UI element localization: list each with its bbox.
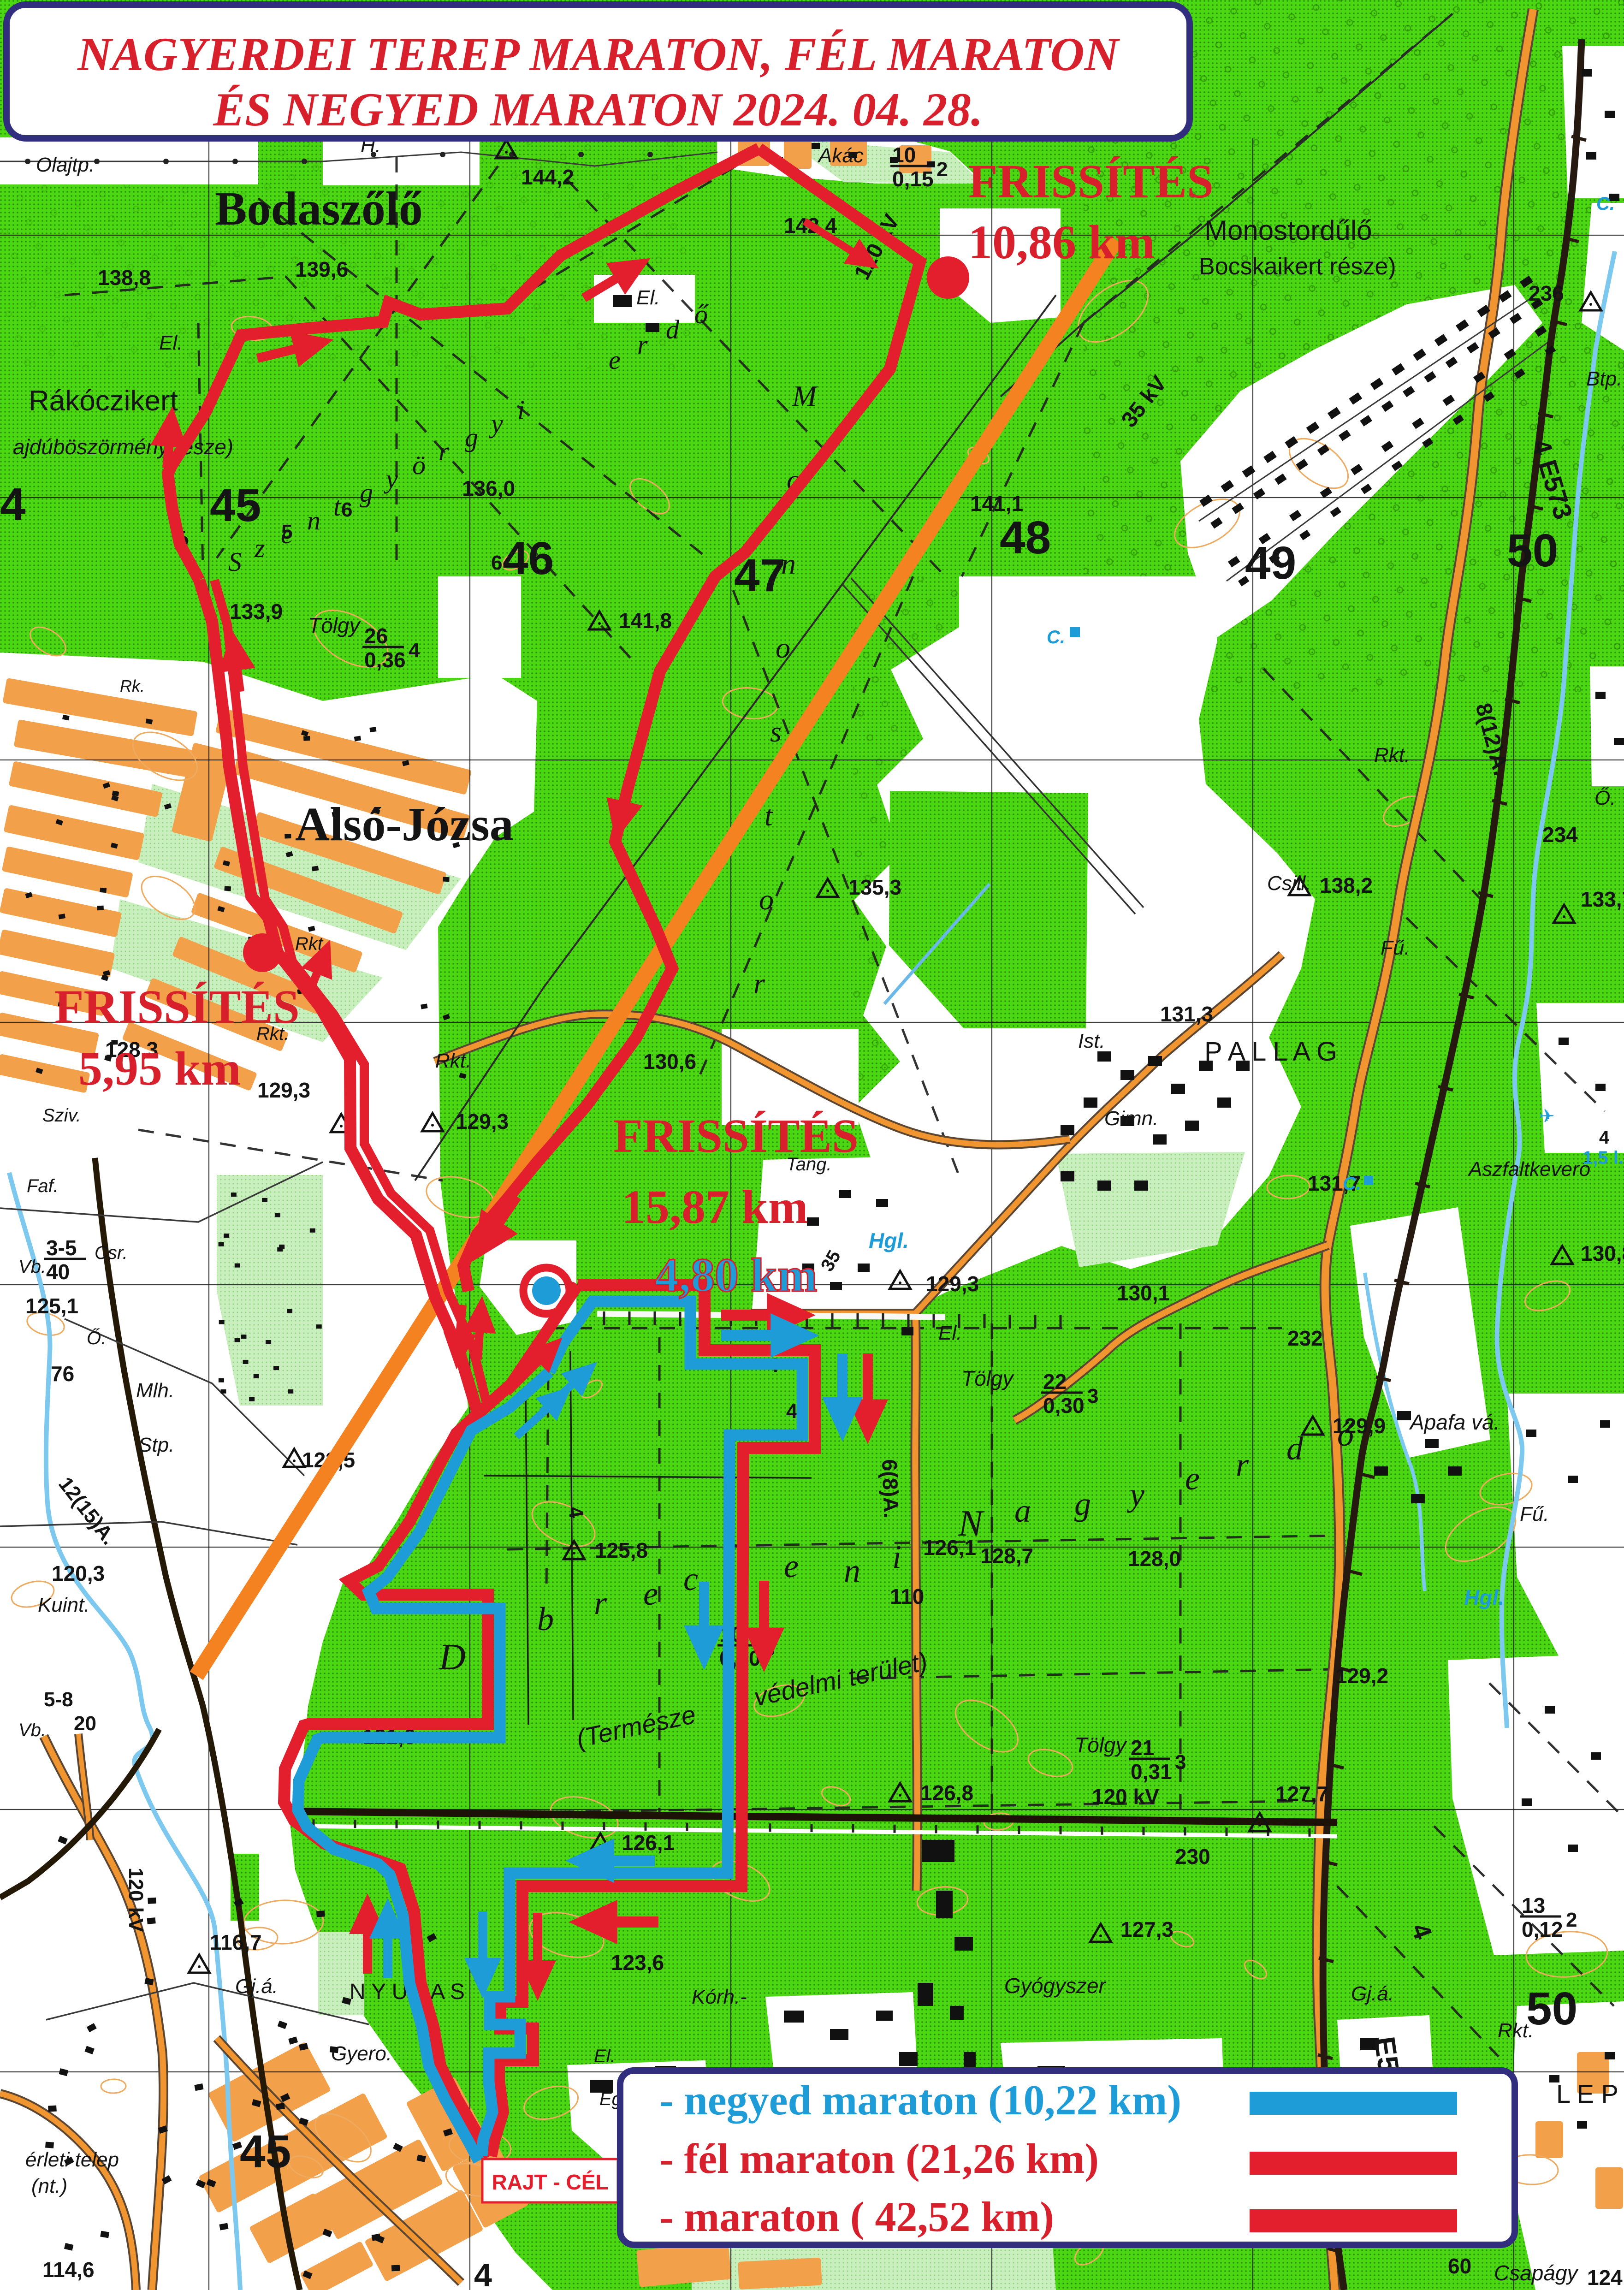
svg-text:Ő.: Ő. bbox=[1594, 787, 1616, 809]
svg-text:C.: C. bbox=[1596, 194, 1615, 214]
svg-text:Tölgy: Tölgy bbox=[1074, 1733, 1127, 1757]
svg-text:Btp.: Btp. bbox=[1586, 368, 1622, 390]
svg-text:g: g bbox=[1074, 1485, 1091, 1522]
svg-text:Hgl.: Hgl. bbox=[1464, 1585, 1504, 1609]
svg-text:125,1: 125,1 bbox=[25, 1294, 78, 1318]
svg-text:Rkt.: Rkt. bbox=[1498, 2019, 1534, 2042]
svg-text:Mlh.: Mlh. bbox=[136, 1379, 174, 1402]
svg-text:c: c bbox=[683, 1560, 698, 1597]
svg-text:133,9: 133,9 bbox=[230, 599, 283, 623]
svg-text:26: 26 bbox=[364, 624, 388, 648]
svg-text:Ist.: Ist. bbox=[1078, 1030, 1105, 1052]
svg-text:e: e bbox=[1185, 1460, 1200, 1497]
svg-text:4: 4 bbox=[474, 2257, 492, 2290]
svg-text:60: 60 bbox=[1448, 2254, 1471, 2278]
svg-text:120 kV: 120 kV bbox=[1092, 1785, 1159, 1809]
svg-text:129,3: 129,3 bbox=[456, 1109, 509, 1133]
svg-text:- negyed maraton (10,22 km): - negyed maraton (10,22 km) bbox=[659, 2076, 1181, 2124]
svg-text:Gyógyszer: Gyógyszer bbox=[1004, 1974, 1107, 1998]
svg-text:Csr.: Csr. bbox=[95, 1243, 128, 1263]
svg-text:126,8: 126,8 bbox=[920, 1781, 973, 1805]
svg-text:50: 50 bbox=[1507, 525, 1558, 576]
svg-text:135,3: 135,3 bbox=[848, 875, 901, 899]
svg-text:138,2: 138,2 bbox=[1320, 873, 1373, 897]
svg-text:2: 2 bbox=[1566, 1909, 1577, 1931]
svg-text:22: 22 bbox=[1043, 1370, 1067, 1394]
svg-text:Apafa vá.: Apafa vá. bbox=[1409, 1410, 1500, 1434]
svg-text:49: 49 bbox=[1245, 537, 1296, 589]
svg-text:125,8: 125,8 bbox=[595, 1538, 648, 1562]
svg-text:Sziv.: Sziv. bbox=[42, 1105, 81, 1126]
svg-text:ő: ő bbox=[1337, 1416, 1355, 1453]
svg-text:50: 50 bbox=[1526, 1983, 1577, 2035]
svg-text:48: 48 bbox=[1000, 512, 1051, 564]
svg-text:b: b bbox=[537, 1601, 554, 1637]
svg-text:ÉS NEGYED MARATON 2024. 04. 28: ÉS NEGYED MARATON 2024. 04. 28. bbox=[213, 83, 983, 136]
svg-text:d: d bbox=[1286, 1430, 1304, 1467]
svg-text:230: 230 bbox=[1175, 1845, 1210, 1869]
svg-text:Csill.: Csill. bbox=[1267, 872, 1311, 895]
svg-text:76: 76 bbox=[51, 1362, 74, 1386]
svg-text:40: 40 bbox=[46, 1260, 70, 1284]
svg-text:D: D bbox=[439, 1637, 466, 1678]
svg-text:C.: C. bbox=[1047, 627, 1065, 647]
svg-text:Rkt.: Rkt. bbox=[435, 1050, 471, 1072]
svg-text:130,8: 130,8 bbox=[1581, 1241, 1624, 1265]
svg-text:21: 21 bbox=[1131, 1736, 1154, 1760]
svg-text:4: 4 bbox=[786, 1400, 798, 1423]
svg-text:138,8: 138,8 bbox=[98, 266, 151, 290]
svg-text:Gyero.: Gyero. bbox=[331, 2042, 392, 2065]
svg-text:FRISSÍTÉS: FRISSÍTÉS bbox=[968, 155, 1214, 208]
svg-text:0,30: 0,30 bbox=[1043, 1394, 1085, 1418]
svg-text:6: 6 bbox=[341, 498, 352, 521]
svg-text:141,8: 141,8 bbox=[619, 609, 672, 633]
svg-text:t: t bbox=[765, 799, 774, 832]
svg-text:10: 10 bbox=[892, 143, 916, 167]
svg-text:Aszfaltkeverő: Aszfaltkeverő bbox=[1467, 1158, 1591, 1181]
svg-text:r: r bbox=[594, 1584, 607, 1621]
svg-text:Vb.: Vb. bbox=[18, 1720, 46, 1740]
svg-text:NAGYERDEI TEREP MARATON, FÉL M: NAGYERDEI TEREP MARATON, FÉL MARATON bbox=[77, 28, 1120, 81]
svg-text:4,80 km: 4,80 km bbox=[655, 1249, 817, 1302]
svg-text:a: a bbox=[1014, 1492, 1031, 1529]
svg-text:ö: ö bbox=[412, 450, 426, 480]
svg-text:El.: El. bbox=[594, 2046, 616, 2066]
svg-text:15,87 km: 15,87 km bbox=[622, 1181, 808, 1234]
svg-text:Faf.: Faf. bbox=[27, 1176, 59, 1196]
svg-text:S: S bbox=[228, 547, 242, 577]
svg-text:t: t bbox=[333, 492, 342, 522]
svg-text:g: g bbox=[465, 422, 478, 452]
svg-text:3: 3 bbox=[1087, 1385, 1098, 1407]
svg-text:114,6: 114,6 bbox=[42, 2258, 95, 2282]
svg-text:Bodaszőlő: Bodaszőlő bbox=[215, 182, 423, 235]
svg-text:o: o bbox=[759, 883, 774, 916]
svg-text:Fű.: Fű. bbox=[1381, 937, 1410, 959]
svg-text:1,5 l.: 1,5 l. bbox=[1583, 1148, 1624, 1168]
svg-text:6: 6 bbox=[491, 552, 502, 574]
svg-text:ő: ő bbox=[694, 299, 709, 329]
svg-text:4: 4 bbox=[409, 639, 420, 662]
svg-text:Fű.: Fű. bbox=[1520, 1503, 1549, 1525]
svg-text:0,15: 0,15 bbox=[892, 167, 934, 191]
svg-text:Bocskaikert része): Bocskaikert része) bbox=[1199, 253, 1396, 280]
svg-text:127,3: 127,3 bbox=[1120, 1917, 1174, 1941]
svg-text:46: 46 bbox=[503, 533, 554, 584]
svg-text:5,95 km: 5,95 km bbox=[78, 1042, 241, 1095]
svg-text:(nt.): (nt.) bbox=[31, 2175, 67, 2197]
svg-text:érleti telep: érleti telep bbox=[25, 2148, 119, 2171]
svg-text:128,0: 128,0 bbox=[1128, 1547, 1181, 1571]
svg-text:n: n bbox=[781, 547, 796, 580]
svg-text:Kórh.-: Kórh.- bbox=[692, 1986, 747, 2008]
svg-text:3: 3 bbox=[1175, 1751, 1186, 1774]
svg-text:Ő.: Ő. bbox=[87, 1328, 106, 1348]
svg-text:5-8: 5-8 bbox=[44, 1688, 73, 1711]
svg-text:- fél maraton (21,26 km): - fél maraton (21,26 km) bbox=[659, 2135, 1099, 2182]
svg-text:s: s bbox=[770, 715, 782, 748]
svg-text:136,0: 136,0 bbox=[462, 476, 515, 500]
svg-text:L E P: L E P bbox=[1556, 2079, 1618, 2108]
svg-text:139,6: 139,6 bbox=[295, 257, 348, 281]
svg-text:Tölgy: Tölgy bbox=[308, 613, 361, 637]
svg-text:133,7: 133,7 bbox=[1581, 887, 1624, 911]
svg-text:o: o bbox=[776, 631, 790, 664]
svg-text:Vb.: Vb. bbox=[18, 1257, 46, 1277]
svg-text:45: 45 bbox=[240, 2126, 291, 2177]
svg-text:128,7: 128,7 bbox=[980, 1544, 1033, 1568]
svg-text:M: M bbox=[792, 380, 818, 412]
svg-text:RAJT - CÉL: RAJT - CÉL bbox=[492, 2170, 609, 2194]
svg-text:Gj.á.: Gj.á. bbox=[1351, 1982, 1394, 2005]
svg-text:Kuint.: Kuint. bbox=[38, 1594, 90, 1616]
svg-text:e: e bbox=[784, 1548, 799, 1584]
svg-text:3-5: 3-5 bbox=[46, 1236, 77, 1260]
svg-text:e: e bbox=[609, 345, 621, 375]
svg-text:120 kV: 120 kV bbox=[124, 1868, 147, 1932]
svg-text:120,3: 120,3 bbox=[52, 1561, 105, 1585]
svg-text:2: 2 bbox=[936, 158, 948, 181]
svg-text:i: i bbox=[517, 395, 525, 425]
svg-text:z: z bbox=[254, 533, 265, 563]
svg-text:✈: ✈ bbox=[1539, 1106, 1555, 1127]
svg-text:n: n bbox=[307, 505, 320, 535]
svg-text:Alsó-Józsa: Alsó-Józsa bbox=[295, 798, 514, 851]
svg-text:ajdúböszörmény része): ajdúböszörmény része) bbox=[13, 435, 233, 459]
svg-text:i: i bbox=[892, 1538, 901, 1575]
svg-text:n: n bbox=[844, 1552, 860, 1589]
svg-text:144,2: 144,2 bbox=[521, 165, 574, 189]
svg-text:r: r bbox=[439, 436, 449, 466]
svg-text:- maraton ( 42,52 km): - maraton ( 42,52 km) bbox=[659, 2193, 1054, 2240]
svg-text:Stp.: Stp. bbox=[138, 1434, 174, 1456]
svg-text:4: 4 bbox=[0, 479, 26, 530]
svg-text:130,1: 130,1 bbox=[1117, 1281, 1170, 1305]
svg-text:129,2: 129,2 bbox=[1335, 1664, 1388, 1688]
svg-text:C.: C. bbox=[1343, 1174, 1361, 1194]
svg-text:g: g bbox=[360, 478, 373, 508]
svg-text:y: y bbox=[489, 409, 503, 439]
svg-text:20: 20 bbox=[74, 1712, 96, 1735]
svg-text:El.: El. bbox=[636, 286, 660, 309]
svg-text:126,1: 126,1 bbox=[622, 1831, 675, 1855]
svg-text:232: 232 bbox=[1287, 1326, 1323, 1350]
svg-text:Rákóczikert: Rákóczikert bbox=[29, 385, 178, 417]
svg-text:Olajtp.: Olajtp. bbox=[36, 154, 95, 176]
svg-text:FRISSÍTÉS: FRISSÍTÉS bbox=[613, 1109, 859, 1163]
svg-text:Rkt.: Rkt. bbox=[1374, 744, 1410, 766]
svg-text:Tölgy: Tölgy bbox=[961, 1366, 1014, 1390]
svg-text:y: y bbox=[384, 464, 398, 494]
svg-text:110: 110 bbox=[890, 1584, 924, 1608]
svg-text:FRISSÍTÉS: FRISSÍTÉS bbox=[54, 980, 300, 1033]
svg-text:116,7: 116,7 bbox=[210, 1930, 262, 1954]
svg-text:d: d bbox=[666, 314, 680, 344]
svg-text:Rk.: Rk. bbox=[120, 676, 145, 695]
svg-text:13: 13 bbox=[1522, 1893, 1545, 1917]
svg-text:123,6: 123,6 bbox=[611, 1951, 664, 1975]
svg-text:130,6: 130,6 bbox=[643, 1050, 696, 1074]
svg-text:Csapágy: Csapágy bbox=[1494, 2261, 1579, 2285]
svg-text:r: r bbox=[1236, 1446, 1249, 1483]
svg-text:129,3: 129,3 bbox=[926, 1272, 979, 1296]
svg-text:Monostordűlő: Monostordűlő bbox=[1204, 215, 1372, 246]
svg-text:e: e bbox=[643, 1575, 658, 1612]
svg-text:127,7: 127,7 bbox=[1275, 1782, 1328, 1806]
svg-text:129,3: 129,3 bbox=[257, 1078, 310, 1102]
svg-text:N: N bbox=[958, 1503, 985, 1544]
svg-text:Gj.á.: Gj.á. bbox=[235, 1975, 278, 1998]
svg-text:234: 234 bbox=[1542, 823, 1578, 847]
svg-text:El.: El. bbox=[159, 332, 183, 354]
svg-text:Gimn.: Gimn. bbox=[1104, 1107, 1158, 1130]
svg-text:4: 4 bbox=[1599, 1127, 1610, 1148]
svg-text:P A L L A G: P A L L A G bbox=[1204, 1037, 1337, 1067]
svg-text:45: 45 bbox=[210, 480, 261, 531]
svg-text:236: 236 bbox=[1529, 281, 1564, 305]
svg-text:0,36: 0,36 bbox=[364, 648, 406, 672]
svg-text:r: r bbox=[637, 330, 648, 360]
svg-text:0,12: 0,12 bbox=[1522, 1917, 1563, 1941]
svg-text:5: 5 bbox=[281, 521, 292, 543]
svg-text:Hgl.: Hgl. bbox=[869, 1228, 909, 1252]
svg-text:10,86 km: 10,86 km bbox=[968, 216, 1155, 269]
svg-text:6(8)A.: 6(8)A. bbox=[877, 1459, 903, 1519]
svg-text:Akác: Akác bbox=[817, 144, 864, 167]
svg-text:r: r bbox=[753, 967, 765, 1000]
svg-text:131,3: 131,3 bbox=[1160, 1002, 1213, 1026]
svg-text:0,31: 0,31 bbox=[1131, 1760, 1172, 1784]
svg-text:124,3: 124,3 bbox=[1587, 2266, 1624, 2290]
